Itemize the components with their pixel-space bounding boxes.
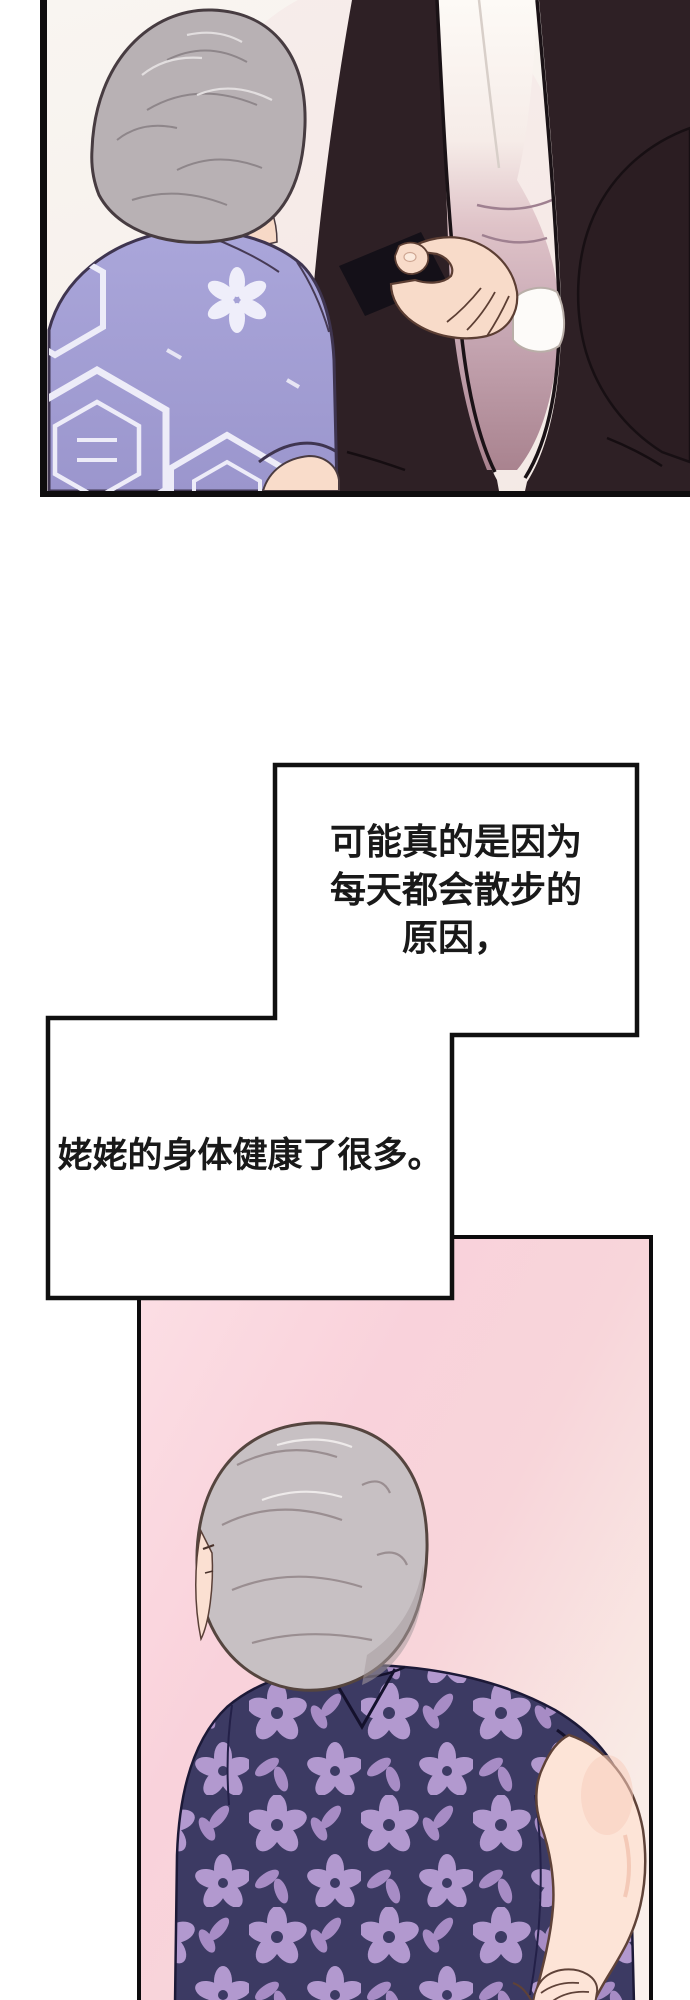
panel-3 (137, 1235, 653, 2000)
bubble-2-line-1: 姥姥的身体健康了很多。 (50, 1132, 450, 1180)
comic-page: 可能真的是因为 每天都会散步的 原因， 姥姥的身体健康了很多。 (0, 0, 690, 2000)
speech-bubble-2: 姥姥的身体健康了很多。 (50, 1132, 450, 1180)
grandma-hair (92, 10, 305, 242)
grandma-back-figure (175, 1423, 645, 2000)
shirt-cuff (513, 288, 564, 352)
bubble-1-line-1: 可能真的是因为 (277, 818, 635, 866)
thumbnail (404, 253, 416, 262)
suit-man-figure (302, 0, 690, 491)
panel-1-illustration (47, 0, 690, 491)
panel-1 (40, 0, 690, 497)
speech-bubble-1: 可能真的是因为 每天都会散步的 原因， (277, 818, 635, 962)
bubble-1-line-2: 每天都会散步的 (277, 866, 635, 914)
panel-3-illustration (137, 1235, 653, 2000)
bubble-1-line-3: 原因， (277, 914, 635, 962)
